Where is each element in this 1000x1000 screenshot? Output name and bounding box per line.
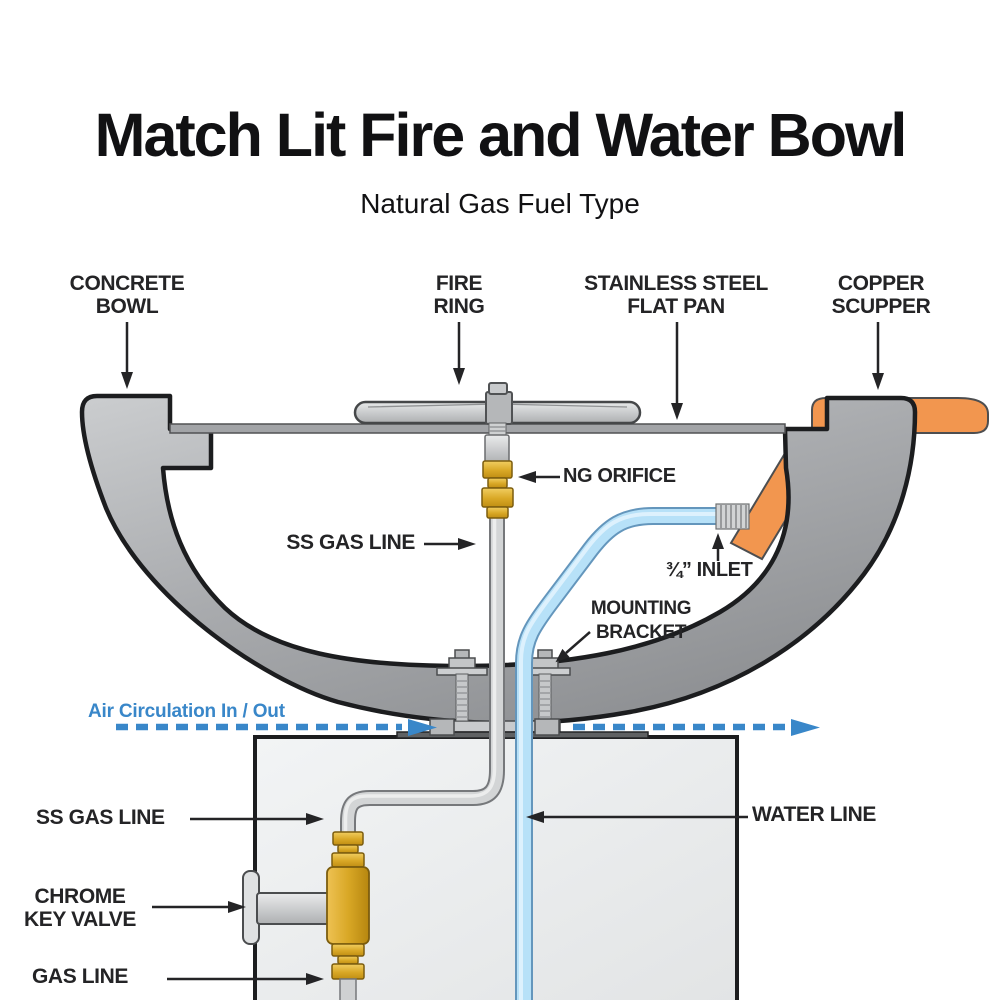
label-copper-scupper: COPPERSCUPPER (832, 272, 931, 318)
fire-ring-shape (355, 383, 640, 463)
label-flat-pan: STAINLESS STEELFLAT PAN (584, 272, 768, 318)
gas-line-stub (340, 979, 356, 1000)
diagram-page: Match Lit Fire and Water Bowl Natural Ga… (0, 0, 1000, 1000)
gas-valve-body (327, 832, 369, 1000)
inlet-fitting (716, 504, 749, 529)
label-water-line: WATER LINE (752, 803, 876, 826)
label-concrete-bowl: CONCRETEBOWL (70, 272, 185, 318)
fire-water-bowl-diagram (0, 0, 1000, 1000)
bracket-spacer-right (535, 719, 559, 735)
label-gas-line: GAS LINE (32, 965, 128, 988)
label-air-circulation: Air Circulation In / Out (88, 700, 285, 723)
label-ng-orifice: NG ORIFICE (563, 465, 676, 488)
label-inlet: ¾” INLET (666, 559, 753, 582)
label-fire-ring: FIRERING (434, 272, 485, 318)
label-chrome-key-valve: CHROMEKEY VALVE (24, 885, 136, 931)
fire-ring-nozzle-tip (489, 383, 507, 394)
label-mounting-bracket: MOUNTINGBRACKET (591, 597, 691, 645)
riser-threads (489, 423, 506, 436)
fire-ring-hub (486, 392, 512, 424)
label-ss-gas-line-lower: SS GAS LINE (36, 806, 165, 829)
flat-pan-shape (170, 424, 785, 433)
valve-stem (257, 893, 329, 924)
riser-pipe (485, 435, 509, 463)
mounting-bracket-arrow (566, 632, 590, 653)
label-ss-gas-line-upper: SS GAS LINE (286, 531, 415, 554)
ng-orifice-fitting (482, 461, 513, 518)
